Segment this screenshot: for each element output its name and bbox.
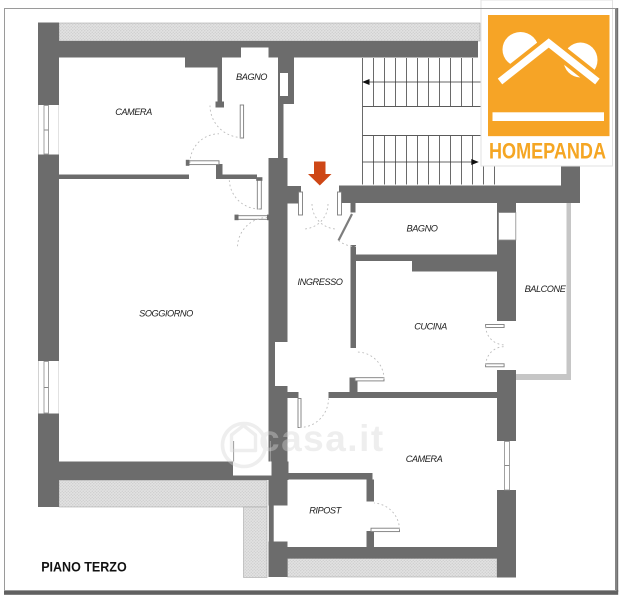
svg-text:CAMERA: CAMERA xyxy=(406,454,443,464)
svg-text:BAGNO: BAGNO xyxy=(236,72,267,82)
svg-text:HOMEPANDA: HOMEPANDA xyxy=(489,139,606,164)
svg-text:BAGNO: BAGNO xyxy=(407,224,438,234)
svg-text:PIANO TERZO: PIANO TERZO xyxy=(41,559,127,575)
svg-text:BALCONE: BALCONE xyxy=(525,284,567,294)
svg-text:CUCINA: CUCINA xyxy=(414,322,447,332)
svg-text:SOGGIORNO: SOGGIORNO xyxy=(139,309,193,319)
svg-text:CAMERA: CAMERA xyxy=(115,107,152,117)
svg-text:INGRESSO: INGRESSO xyxy=(298,277,343,287)
svg-text:RIPOST: RIPOST xyxy=(309,506,342,516)
svg-text:casa.it: casa.it xyxy=(259,418,385,459)
